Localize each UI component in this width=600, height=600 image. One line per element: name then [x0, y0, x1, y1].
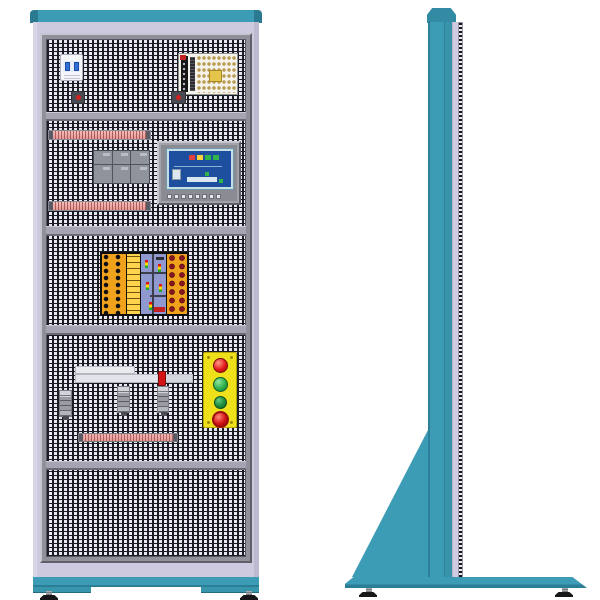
leveling-foot	[555, 592, 573, 597]
hmi-indicator-yellow	[197, 155, 203, 160]
hmi-screen-frame	[166, 148, 234, 190]
hmi-touchscreen[interactable]	[169, 151, 231, 187]
banana-socket-grid	[167, 254, 187, 314]
terminal-block-grid	[102, 254, 126, 314]
terminal-strip	[78, 433, 178, 442]
column-seam	[444, 22, 445, 578]
strip-end-cap	[173, 434, 177, 441]
hmi-function-key[interactable]	[167, 194, 172, 199]
hmi-function-keys	[167, 194, 221, 199]
leveling-foot	[240, 595, 258, 600]
foot-stem	[562, 588, 568, 592]
sensor	[117, 386, 130, 413]
breaker-toggle[interactable]	[65, 62, 70, 71]
hmi-indicator-red	[189, 155, 195, 160]
red-label-tag	[154, 307, 165, 312]
wiring-duct	[48, 130, 151, 140]
road-graphic	[152, 254, 154, 314]
red-indicator-dot	[176, 95, 181, 100]
wiring-duct	[48, 201, 151, 211]
green-pushbutton[interactable]	[213, 377, 228, 392]
psu-red-component	[180, 55, 186, 60]
foot-stem	[246, 591, 252, 595]
hmi-pipe-graphic	[174, 166, 222, 167]
leveling-foot	[359, 592, 377, 597]
pilot-device	[171, 91, 186, 104]
hmi-tank-graphic	[172, 169, 181, 180]
red-pilot-light	[213, 358, 228, 373]
foot-stem	[46, 591, 52, 595]
slide-rail-upper	[75, 366, 135, 374]
support-gusset	[352, 430, 428, 577]
power-supply-board	[178, 53, 238, 95]
mounting-rail	[46, 461, 246, 470]
panel-screw	[207, 421, 210, 424]
side-top-cap	[427, 8, 456, 23]
hmi-indicator-green	[213, 155, 219, 160]
hmi-function-key[interactable]	[216, 194, 221, 199]
panel-screw	[207, 356, 210, 359]
duct-end-cap	[49, 131, 53, 139]
plc-module	[131, 165, 149, 183]
pcb-chip	[156, 257, 164, 260]
plc-module	[94, 165, 112, 183]
mounting-rail	[46, 325, 246, 335]
traffic-light-pcb	[141, 254, 167, 314]
hmi-function-key[interactable]	[195, 194, 200, 199]
psu-terminal-strip	[181, 56, 188, 92]
hmi-status-dot	[219, 179, 223, 183]
sensor	[157, 386, 169, 413]
label-strip	[127, 254, 140, 314]
hmi-status-dot	[205, 172, 209, 176]
circuit-breaker	[60, 54, 83, 81]
plc-module	[113, 151, 131, 164]
panel-screw	[230, 421, 233, 424]
side-base-plate	[345, 577, 587, 588]
mounting-rail	[46, 112, 246, 121]
strip-end-cap	[79, 434, 83, 441]
breaker-toggle[interactable]	[74, 62, 79, 71]
leveling-foot	[40, 595, 58, 600]
pushbutton-station	[203, 352, 237, 428]
io-trainer-board	[100, 252, 189, 316]
psu-heatsink	[190, 57, 195, 91]
panel-screw	[230, 356, 233, 359]
red-indicator-dot	[76, 95, 81, 100]
hmi-function-key[interactable]	[209, 194, 214, 199]
green-pushbutton[interactable]	[214, 396, 227, 409]
plc-module-block	[93, 150, 150, 184]
red-stop-block	[158, 371, 166, 386]
sensor	[59, 390, 72, 417]
base-step	[33, 587, 91, 593]
mini-traffic-light	[159, 284, 162, 292]
hmi-function-key[interactable]	[202, 194, 207, 199]
emergency-stop-button[interactable]	[212, 411, 229, 428]
hmi-touch-panel	[157, 141, 241, 205]
mini-traffic-light	[149, 302, 152, 310]
duct-end-cap	[49, 202, 53, 210]
hmi-function-key[interactable]	[188, 194, 193, 199]
side-vent-louvers	[458, 22, 463, 578]
slide-rail-lower	[75, 374, 193, 383]
cabinet-base	[33, 577, 259, 587]
illustration-canvas	[0, 0, 600, 600]
duct-end-cap	[146, 131, 150, 139]
hmi-indicator-green	[205, 155, 211, 160]
mounting-rail	[46, 226, 246, 236]
mini-traffic-light	[146, 282, 149, 290]
pilot-device	[71, 91, 85, 104]
duct-end-cap	[146, 202, 150, 210]
hmi-toolbar-graphic	[187, 177, 217, 182]
plc-module	[113, 165, 131, 183]
psu-transformer	[209, 70, 222, 82]
foot-stem	[366, 588, 372, 592]
mini-traffic-light	[158, 264, 161, 272]
hmi-function-key[interactable]	[181, 194, 186, 199]
road-graphic	[141, 272, 167, 274]
plc-module	[131, 151, 149, 164]
breaker-label-lines	[64, 74, 80, 79]
hmi-indicator-row	[189, 155, 219, 160]
hmi-function-key[interactable]	[174, 194, 179, 199]
road-graphic	[150, 295, 167, 297]
mini-traffic-light	[145, 260, 148, 268]
side-column	[428, 22, 452, 578]
plc-module	[94, 151, 112, 164]
